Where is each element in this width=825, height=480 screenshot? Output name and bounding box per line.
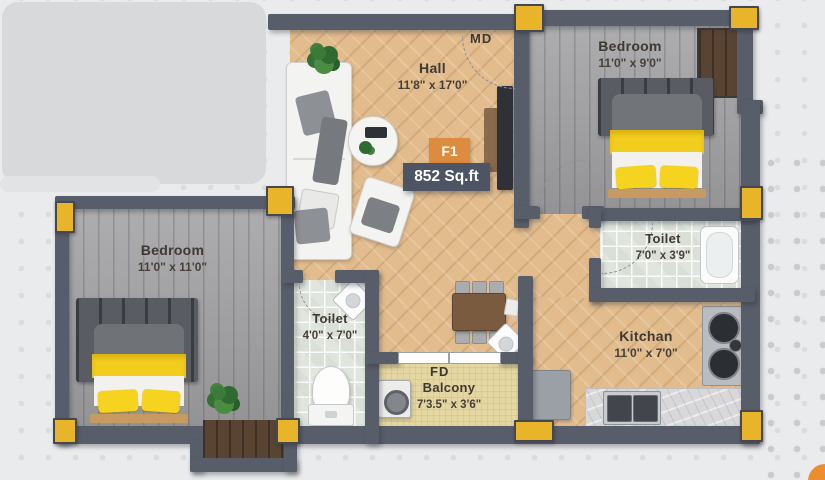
folding-door-label: FD [430, 364, 449, 379]
bed-tr-throw [610, 130, 704, 154]
column [55, 201, 75, 233]
wall-toilet-r-bottom [589, 288, 755, 302]
balcony-dims: 7'3.5" x 3'6" [393, 399, 505, 412]
bedroom-l-plant [212, 386, 226, 400]
column [266, 186, 294, 216]
wall-hall-top [268, 14, 518, 30]
flush-button [325, 411, 337, 418]
hall-dims: 11'8" x 17'0" [365, 79, 500, 93]
wall-bay-right [284, 440, 297, 472]
toilet-r-label: Toilet 7'0" x 3'9" [612, 232, 714, 263]
bedroom-l-dims: 11'0" x 11'0" [100, 261, 245, 275]
bedroom-l-label: Bedroom 11'0" x 11'0" [100, 242, 245, 275]
sofa-pillow-bottom2 [293, 207, 330, 244]
toilet-l-tank [308, 404, 354, 426]
coffee-table [348, 116, 398, 166]
table-plant [359, 141, 372, 154]
bed-tr-base [608, 189, 706, 198]
wall-kitchen-left [518, 276, 533, 428]
kitchen-sink [603, 391, 661, 425]
blank-overlay [2, 2, 266, 184]
bed-l-duvet [94, 324, 184, 358]
bed-l-base [90, 414, 188, 423]
column [740, 410, 763, 442]
bedroom-tr-name: Bedroom [560, 38, 700, 54]
sofa [286, 62, 352, 260]
sink-basin-right [633, 395, 658, 422]
bedroom-tr-label: Bedroom 11'0" x 9'0" [560, 38, 700, 71]
toilet-r-dims: 7'0" x 3'9" [612, 250, 714, 263]
bay-floor [203, 420, 284, 458]
column [514, 420, 554, 442]
hall-label: Hall 11'8" x 17'0" [365, 60, 500, 93]
wall-toilet-r-left-a [589, 208, 601, 228]
floorplan-canvas: Hall 11'8" x 17'0" MD Bedroom 11'0" x 9'… [0, 0, 825, 480]
unit-area: 852 Sq.ft [403, 163, 490, 191]
wall-toilet-l-top-a [281, 270, 303, 283]
wall-divider-right [514, 26, 529, 228]
bed-l-pillow2 [141, 389, 180, 414]
wall-bottom [58, 426, 758, 444]
column [514, 4, 544, 32]
toilet-l-dims: 4'0" x 7'0" [287, 330, 373, 343]
column [276, 418, 300, 444]
folding-door [398, 352, 501, 364]
bed-tr-pillow2 [659, 165, 698, 189]
main-door-label: MD [470, 31, 492, 46]
toilet-r-name: Toilet [612, 232, 714, 247]
bedroom-l-name: Bedroom [100, 242, 245, 258]
sink-basin-left [607, 395, 632, 422]
hall-plant [312, 46, 326, 60]
hall-name: Hall [365, 60, 500, 76]
ottoman-cushion [360, 196, 400, 234]
dot-pattern [758, 150, 825, 480]
burner-bottom [708, 348, 740, 380]
unit-badge: F1 [429, 138, 470, 164]
dining-table [452, 293, 506, 331]
toilet-l-label: Toilet 4'0" x 7'0" [287, 312, 373, 343]
dining-chair [455, 331, 470, 344]
fridge [531, 370, 571, 420]
kitchen-label: Kitchan 11'0" x 7'0" [580, 328, 712, 361]
bedroom-tr-dims: 11'0" x 9'0" [560, 57, 700, 71]
wall-left [55, 198, 69, 444]
folding-door-divider [448, 353, 450, 363]
kitchen-name: Kitchan [580, 328, 712, 344]
wall-bay-bottom [190, 458, 297, 472]
toilet-l-name: Toilet [287, 312, 373, 327]
wall-right-lower [741, 100, 760, 444]
kitchen-dims: 11'0" x 7'0" [580, 347, 712, 361]
wall-bedroom-tr-bottom-a [514, 206, 540, 219]
wall-balcony-top-a [365, 352, 399, 364]
dining-chair [472, 331, 487, 344]
column [53, 418, 77, 444]
bed-tr-pillow [615, 165, 656, 190]
wall-toilet-r-top [590, 208, 755, 221]
wall-bedroom-l-top [55, 196, 295, 209]
table-tray [365, 127, 387, 138]
blank-overlay-edge [0, 176, 160, 192]
bed-l-throw [92, 354, 186, 378]
tv-panel [497, 86, 513, 190]
column [740, 186, 763, 220]
column [729, 6, 759, 30]
balcony-label: Balcony 7'3.5" x 3'6" [393, 381, 505, 412]
wall-bedroom-tr-top [516, 10, 756, 26]
bed-l-pillow [97, 389, 138, 413]
balcony-name: Balcony [393, 381, 505, 396]
